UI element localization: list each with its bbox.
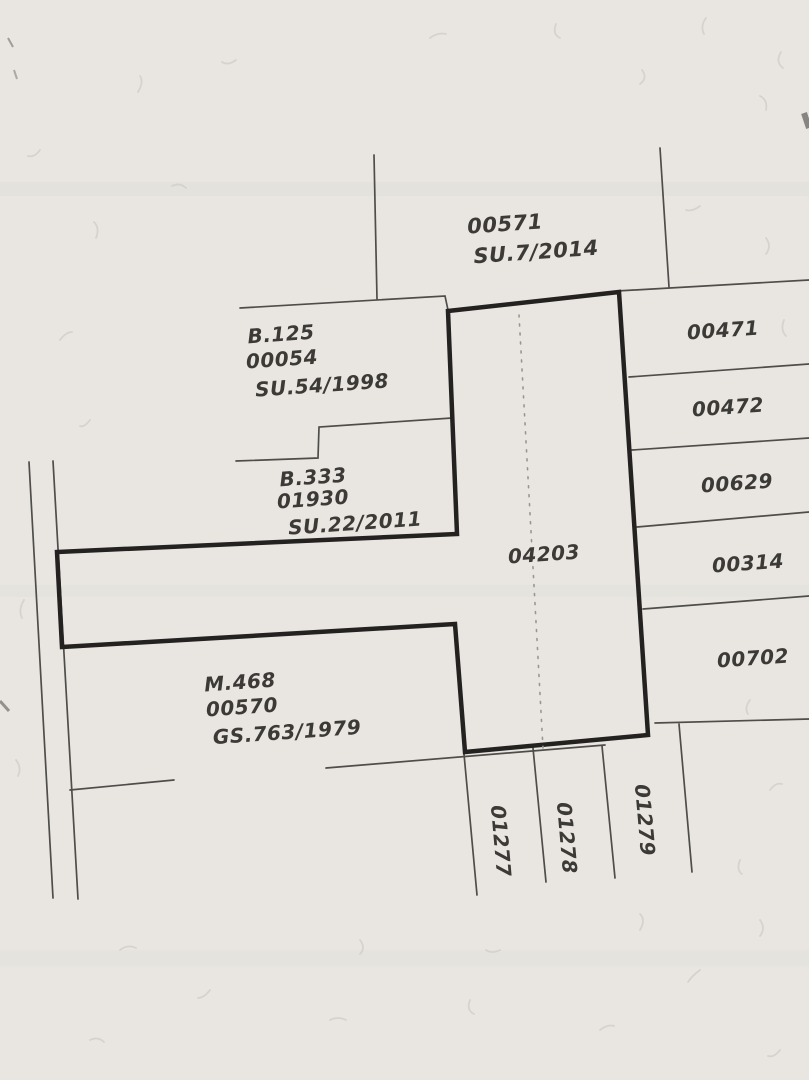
label-east-parcel-00629: 00629 xyxy=(700,469,774,498)
label-south-parcel-01278: 01278 xyxy=(552,801,582,875)
label-east-parcel-00314: 00314 xyxy=(711,549,785,578)
label-east-parcel-00471: 00471 xyxy=(686,316,760,345)
boundary-00472-00629 xyxy=(632,438,809,450)
scan-band xyxy=(0,182,809,196)
scan-band xyxy=(0,950,809,966)
boundary-01277-01278 xyxy=(533,748,546,882)
label-b125-name: B.125 xyxy=(247,320,316,349)
parcel-b333-north-boundary xyxy=(236,418,452,461)
road-line-west-inner xyxy=(53,461,78,899)
boundary-00471-00472 xyxy=(629,364,809,377)
boundary-east-of-01279 xyxy=(679,724,692,872)
cadastral-survey-plan: 00571 SU.7/2014 B.125 00054 SU.54/1998 B… xyxy=(0,0,809,1080)
edge-tick xyxy=(14,70,17,79)
label-b333-number: 01930 xyxy=(276,485,350,514)
east-boundary-top xyxy=(617,280,809,291)
label-m468-number: 00570 xyxy=(205,693,279,722)
label-south-parcel-01279: 01279 xyxy=(630,783,660,857)
edge-smudge xyxy=(804,113,809,128)
label-east-parcel-00472: 00472 xyxy=(691,393,765,422)
label-south-parcel-01277: 01277 xyxy=(486,804,516,878)
parcel-b125-north-boundary xyxy=(240,296,448,310)
edge-smudge xyxy=(0,701,9,711)
label-east-parcel-00702: 00702 xyxy=(716,644,790,673)
boundary-00314-00702 xyxy=(643,596,809,609)
north-boundary-line-west xyxy=(374,155,377,299)
boundary-00702-south xyxy=(655,719,809,723)
label-b125-survey: SU.54/1998 xyxy=(254,368,389,401)
label-central-parcel-number: 04203 xyxy=(507,540,581,569)
north-boundary-line-east xyxy=(660,148,669,287)
scan-artifacts xyxy=(0,38,809,711)
label-b125-number: 00054 xyxy=(245,345,319,374)
edge-tick xyxy=(8,38,13,47)
label-m468-name: M.468 xyxy=(203,668,276,697)
scan-bands xyxy=(0,182,809,966)
parcel-04203-dotted-divider xyxy=(519,315,543,748)
road-branch-stub xyxy=(70,780,174,790)
boundary-west-of-01277 xyxy=(464,754,477,895)
label-north-parcel-survey: SU.7/2014 xyxy=(473,236,600,269)
scan-band xyxy=(0,585,809,597)
boundary-01278-01279 xyxy=(602,746,615,878)
label-north-parcel-number: 00571 xyxy=(466,209,543,238)
label-m468-survey: GS.763/1979 xyxy=(212,715,362,749)
boundary-00629-00314 xyxy=(637,512,809,527)
road-line-west-outer xyxy=(29,462,53,898)
